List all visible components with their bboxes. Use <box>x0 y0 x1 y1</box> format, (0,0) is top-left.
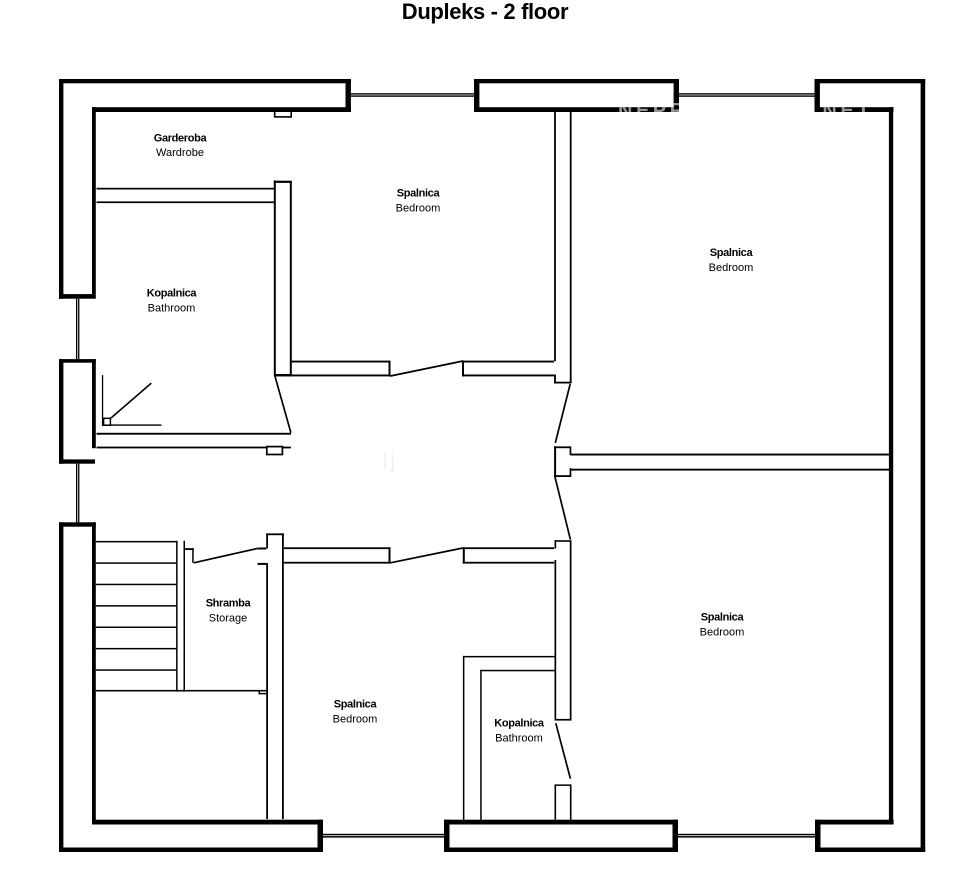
svg-text:Garderoba: Garderoba <box>154 133 208 145</box>
svg-text:Spalnica: Spalnica <box>701 612 745 624</box>
svg-text:Spalnica: Spalnica <box>397 188 441 200</box>
svg-text:Bedroom: Bedroom <box>700 627 745 639</box>
svg-text:Bedroom: Bedroom <box>396 203 441 215</box>
svg-text:Spalnica: Spalnica <box>334 699 378 711</box>
svg-text:Kopalnica: Kopalnica <box>147 288 198 300</box>
svg-text:Bedroom: Bedroom <box>333 714 378 726</box>
svg-text:Shramba: Shramba <box>206 598 252 610</box>
svg-text:Dupleks - 2 floor: Dupleks - 2 floor <box>402 0 569 24</box>
svg-text:Bathroom: Bathroom <box>495 733 543 745</box>
svg-text:Kopalnica: Kopalnica <box>494 718 545 730</box>
svg-text:lj: lj <box>383 451 398 473</box>
svg-text:Bedroom: Bedroom <box>709 262 754 274</box>
svg-text:NEPREMICNINE.NET: NEPREMICNINE.NET <box>618 100 873 122</box>
svg-text:Bathroom: Bathroom <box>148 303 196 315</box>
svg-text:Wardrobe: Wardrobe <box>156 147 204 159</box>
svg-text:Spalnica: Spalnica <box>710 247 754 259</box>
svg-text:Storage: Storage <box>209 613 248 625</box>
